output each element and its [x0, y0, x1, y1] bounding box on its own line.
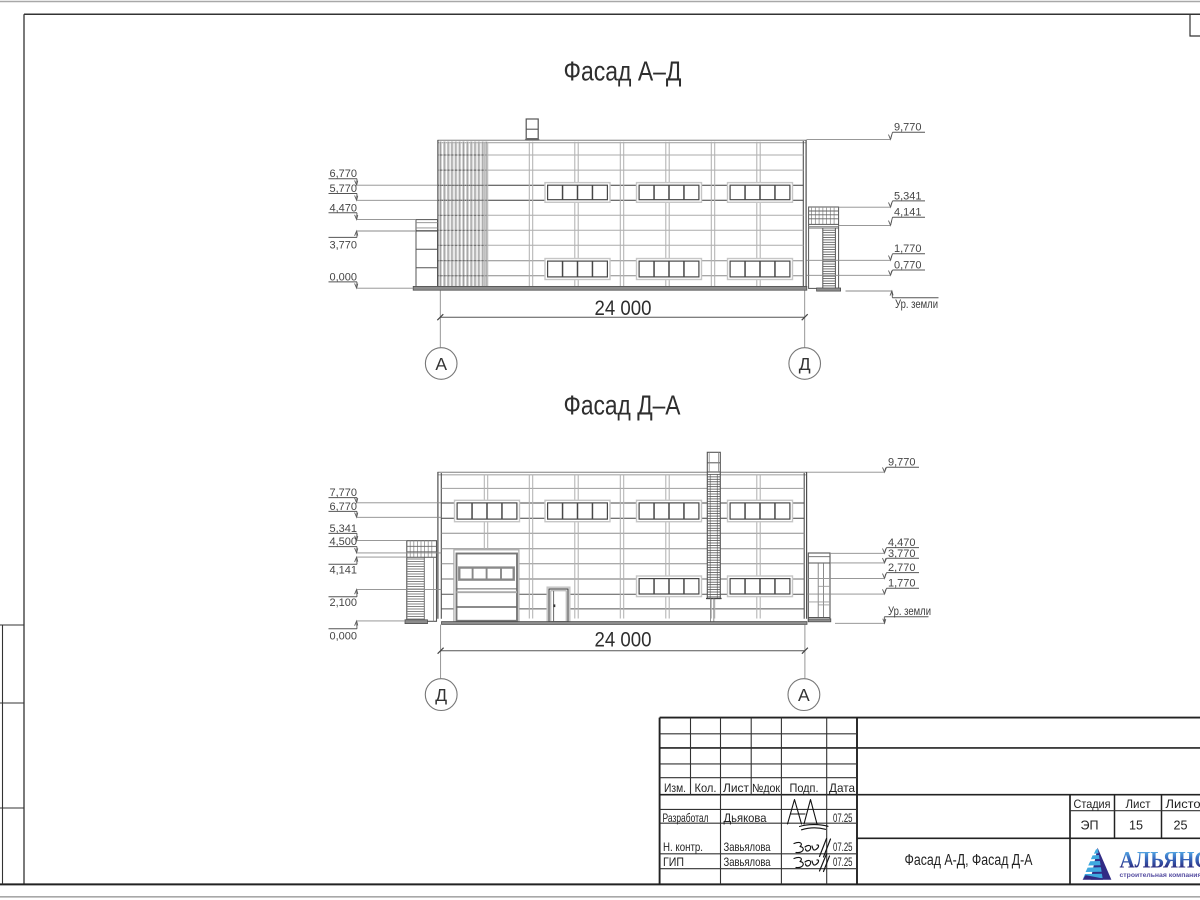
svg-text:Лист: Лист: [1126, 797, 1151, 811]
svg-text:А: А: [798, 685, 810, 705]
svg-text:Д: Д: [435, 685, 447, 705]
svg-text:Завьялова: Завьялова: [724, 841, 771, 854]
svg-text:Стадия: Стадия: [1074, 797, 1111, 811]
svg-text:Лист: Лист: [723, 781, 750, 795]
svg-text:07.25: 07.25: [833, 855, 853, 869]
svg-text:Д: Д: [799, 354, 811, 374]
svg-text:ЭП: ЭП: [1081, 817, 1099, 832]
svg-text:4,141: 4,141: [330, 564, 358, 576]
svg-text:3,770: 3,770: [330, 239, 358, 251]
svg-text:Фасад Д–А: Фасад Д–А: [564, 390, 682, 421]
svg-text:Дата: Дата: [829, 781, 855, 795]
svg-text:24 000: 24 000: [595, 297, 652, 320]
svg-text:ГИП: ГИП: [663, 856, 684, 869]
svg-text:№док: №док: [752, 781, 781, 795]
svg-text:Н. контр.: Н. контр.: [663, 841, 703, 854]
svg-text:А: А: [435, 354, 447, 374]
svg-text:07.25: 07.25: [833, 840, 853, 854]
svg-text:07.25: 07.25: [833, 811, 853, 825]
svg-text:0,000: 0,000: [330, 630, 358, 642]
svg-text:Завьялова: Завьялова: [724, 856, 771, 869]
svg-text:Разработал: Разработал: [663, 812, 709, 825]
svg-text:15: 15: [1129, 817, 1143, 832]
svg-text:Подп.: Подп.: [790, 781, 819, 795]
svg-text:Изм.: Изм.: [664, 781, 686, 795]
svg-text:Фасад А-Д, Фасад Д-А: Фасад А-Д, Фасад Д-А: [905, 852, 1034, 869]
svg-text:24 000: 24 000: [595, 628, 652, 651]
svg-text:Листов: Листов: [1166, 797, 1200, 811]
svg-text:АЛЬЯНС: АЛЬЯНС: [1120, 848, 1200, 873]
svg-text:25: 25: [1174, 817, 1188, 832]
svg-text:Кол.: Кол.: [695, 781, 717, 795]
svg-text:Ур. земли: Ур. земли: [888, 606, 931, 618]
svg-text:Дьякова: Дьякова: [724, 812, 768, 825]
svg-text:Фасад А–Д: Фасад А–Д: [564, 56, 682, 87]
svg-text:Ур. земли: Ур. земли: [895, 299, 938, 311]
svg-text:2,100: 2,100: [330, 597, 358, 609]
svg-text:строительная компания: строительная компания: [1120, 872, 1200, 879]
